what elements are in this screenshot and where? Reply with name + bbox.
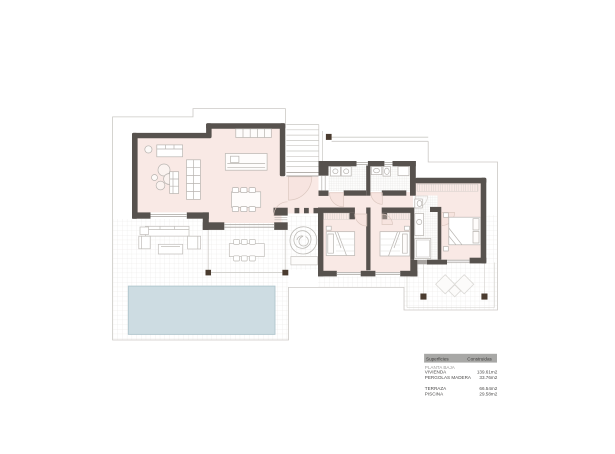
svg-text:PISCINA: PISCINA xyxy=(425,391,444,396)
svg-text:29.58m2: 29.58m2 xyxy=(479,391,497,396)
svg-text:33.76m2: 33.76m2 xyxy=(479,375,497,380)
svg-text:Construidas: Construidas xyxy=(467,357,492,362)
svg-text:VIVIENDA: VIVIENDA xyxy=(425,370,447,375)
svg-text:139.61m2: 139.61m2 xyxy=(477,370,498,375)
svg-text:Superficies: Superficies xyxy=(426,357,449,362)
svg-text:PERGOLAS MADERA: PERGOLAS MADERA xyxy=(425,375,472,380)
